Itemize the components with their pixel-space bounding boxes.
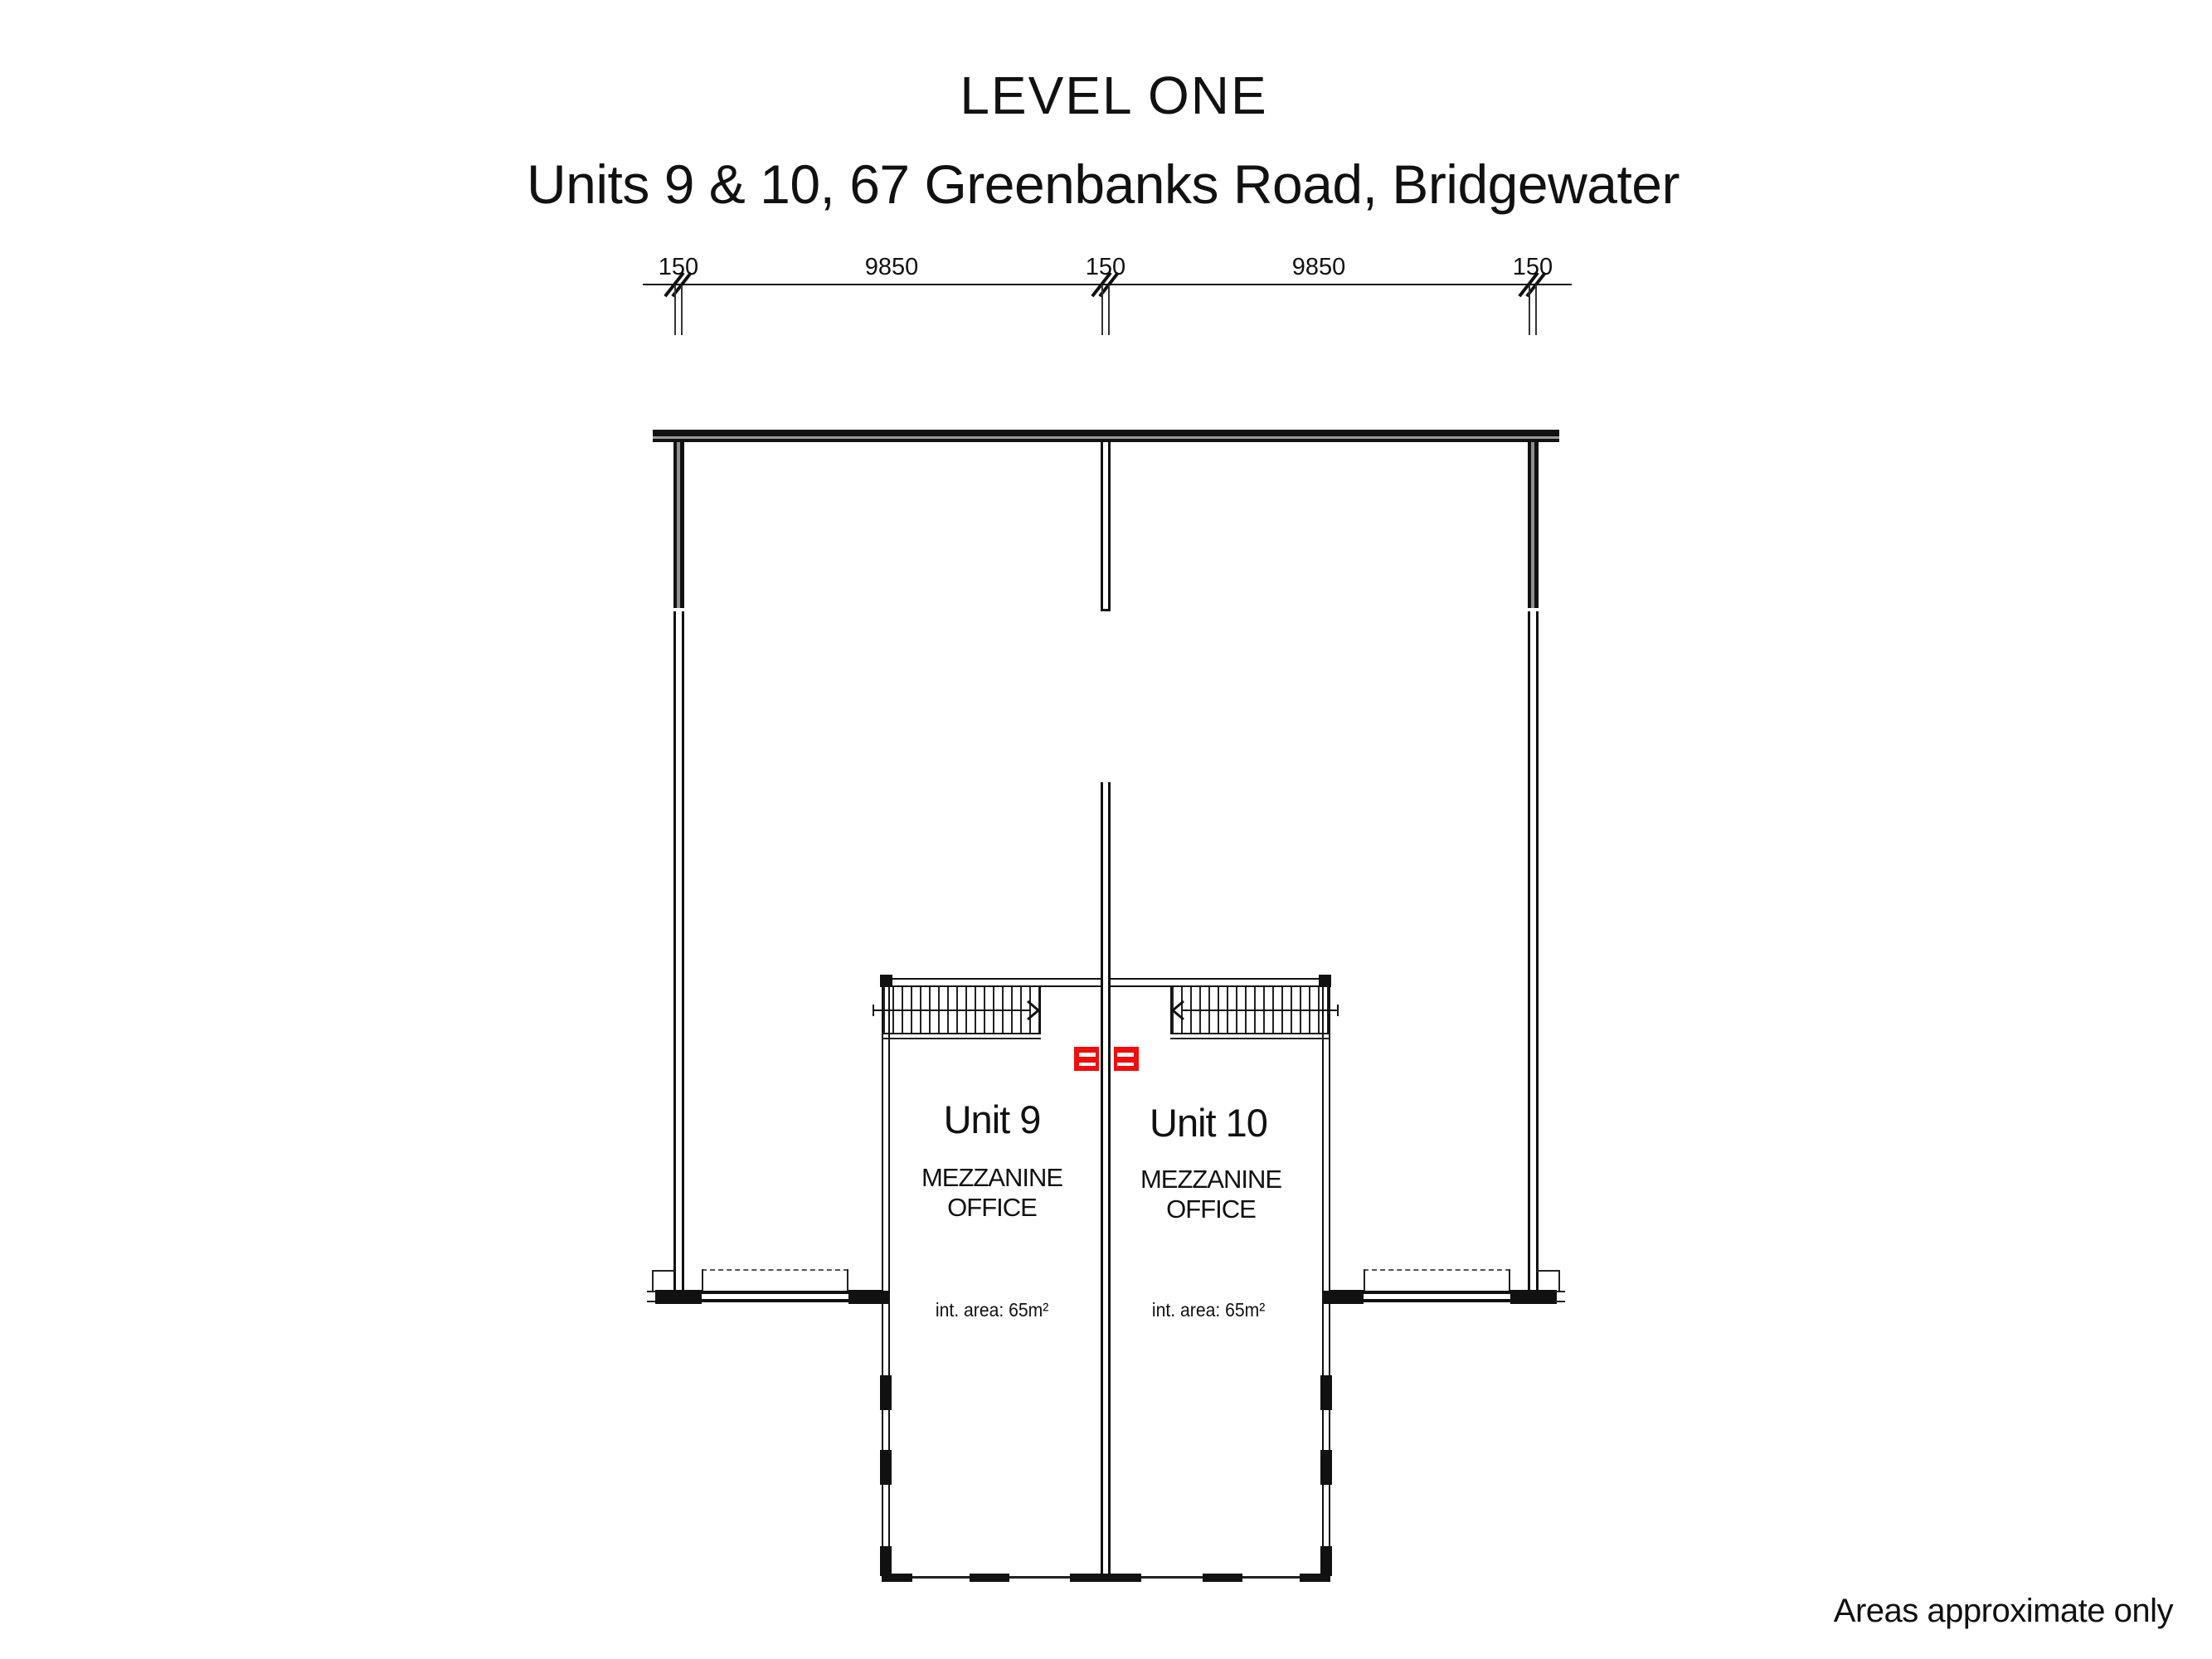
wall-pier [1320, 1375, 1332, 1410]
door-header-return [847, 1269, 848, 1291]
door-header-dashed-left [702, 1269, 848, 1271]
stair-direction-start-tick [873, 1005, 874, 1016]
unit10-room-type: MEZZANINE OFFICE [1107, 1165, 1315, 1224]
floorplan-page: { "title": "LEVEL ONE", "subtitle": "Uni… [0, 0, 2212, 1659]
dim-label-150-right: 150 [1500, 254, 1566, 280]
slab-step-line [1537, 1270, 1560, 1272]
dim-witness-line [1535, 285, 1537, 335]
slab-step-line [1558, 1270, 1560, 1292]
front-window-right [1364, 1291, 1510, 1302]
stair-direction-line [1181, 1010, 1339, 1011]
top-wall [653, 430, 1559, 442]
party-wall-upper [1101, 442, 1111, 611]
bottom-wall-segment [1300, 1574, 1330, 1582]
front-window-left [702, 1291, 848, 1302]
mezzanine-edge-rail [1111, 978, 1330, 987]
right-wall-upper [1528, 442, 1539, 608]
dim-witness-line [1101, 285, 1103, 335]
unit9-label: Unit 9 [909, 1097, 1075, 1142]
icon-detail [1117, 1053, 1134, 1057]
door-header-return [702, 1269, 703, 1291]
rail-post [880, 975, 892, 987]
front-wall-tail [1555, 1301, 1565, 1302]
room-type-line1: MEZZANINE [1107, 1165, 1315, 1194]
dim-label-150-left: 150 [645, 254, 712, 280]
bottom-wall-segment [1203, 1574, 1242, 1582]
dim-label-150-middle: 150 [1072, 254, 1139, 280]
fire-hose-reel-icon [1074, 1047, 1099, 1071]
dim-label-9850-right: 9850 [1269, 254, 1369, 280]
left-wall-lower [673, 611, 684, 1291]
box-right-wall-lower [1322, 1304, 1330, 1574]
front-wall-corner-jamb [1322, 1290, 1364, 1304]
dim-witness-line [681, 285, 683, 335]
dim-witness-line [674, 285, 676, 335]
area-text: int. area: 65m² [1152, 1299, 1265, 1321]
unit10-area-label: int. area: 65m² [1125, 1299, 1291, 1321]
left-wall-upper [673, 442, 684, 608]
front-wall-jamb [655, 1290, 702, 1304]
door-header-dashed-right [1364, 1269, 1510, 1271]
front-wall-corner-jamb [848, 1290, 890, 1304]
wall-pier [1320, 1546, 1332, 1576]
room-type-line2: OFFICE [888, 1193, 1096, 1223]
room-type-line1: MEZZANINE [888, 1163, 1096, 1193]
icon-detail [1117, 1063, 1134, 1066]
unit10-label: Unit 10 [1125, 1100, 1291, 1146]
dim-witness-line [1108, 285, 1110, 335]
stair-direction-arrow-icon [1169, 1000, 1186, 1021]
area-text: int. area: 65m² [936, 1299, 1048, 1321]
room-type-line2: OFFICE [1107, 1194, 1315, 1224]
dim-label-9850-left: 9850 [842, 254, 941, 280]
wall-pier [880, 1546, 892, 1576]
door-header-return [1509, 1269, 1510, 1291]
page-title: LEVEL ONE [948, 65, 1280, 126]
right-wall-lower [1528, 611, 1539, 1291]
slab-step-line [652, 1270, 675, 1272]
unit9-room-type: MEZZANINE OFFICE [888, 1163, 1096, 1223]
box-left-wall-lower [882, 1304, 890, 1574]
page-subtitle: Units 9 & 10, 67 Greenbanks Road, Bridge… [481, 153, 1725, 216]
front-wall-tail [1555, 1291, 1565, 1292]
wall-pier [880, 1450, 892, 1485]
front-wall-jamb [1510, 1290, 1557, 1304]
wall-pier [880, 1375, 892, 1410]
rail-post [1319, 975, 1331, 987]
slab-step-line [652, 1270, 654, 1292]
bottom-wall-segment [1070, 1574, 1141, 1582]
mezzanine-edge-rail [882, 978, 1101, 987]
fire-hose-reel-icon [1114, 1047, 1139, 1071]
stair-direction-arrow-icon [1025, 1000, 1042, 1021]
bottom-wall-segment [882, 1574, 912, 1582]
icon-detail [1079, 1053, 1096, 1057]
stair-direction-start-tick [1337, 1005, 1339, 1016]
icon-detail [1079, 1063, 1096, 1066]
footnote-disclaimer: Areas approximate only [1742, 1593, 2173, 1630]
wall-pier [1320, 1450, 1332, 1485]
dim-witness-line [1529, 285, 1530, 335]
stair-stringer-line [1170, 1038, 1330, 1039]
bottom-wall-segment [970, 1574, 1009, 1582]
party-wall-upper-cap [1101, 609, 1111, 611]
door-header-return [1364, 1269, 1365, 1291]
stair-direction-line [873, 1010, 1030, 1011]
stair-stringer-line [882, 1038, 1041, 1039]
unit9-area-label: int. area: 65m² [909, 1299, 1075, 1321]
